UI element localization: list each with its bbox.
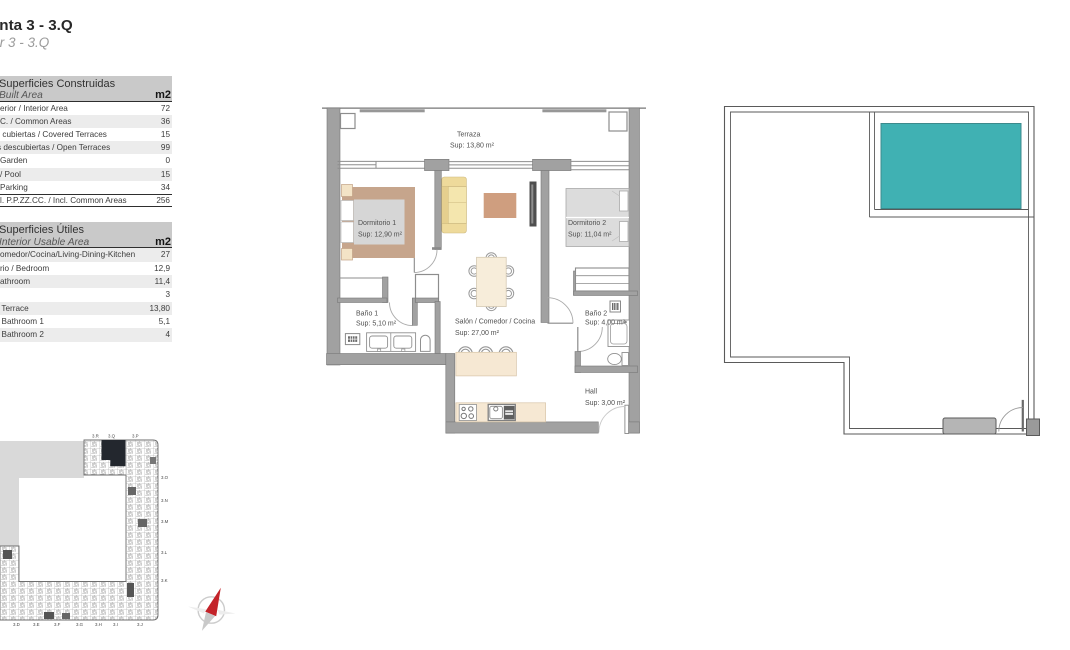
svg-text:3.R: 3.R (92, 433, 99, 438)
svg-text:3.H: 3.H (95, 622, 102, 627)
svg-text:3.G: 3.G (76, 622, 84, 627)
svg-text:3.Q: 3.Q (108, 433, 116, 438)
svg-text:3.M: 3.M (161, 519, 169, 524)
svg-text:3.N: 3.N (161, 498, 168, 503)
svg-text:Baño 1: Baño 1 (356, 311, 378, 318)
svg-text:Dormitorio 1: Dormitorio 1 (358, 220, 396, 227)
svg-text:3.L: 3.L (161, 550, 168, 555)
svg-text:3.D: 3.D (13, 622, 20, 627)
svg-text:3.O: 3.O (161, 475, 169, 480)
svg-text:Hall: Hall (585, 389, 598, 396)
svg-text:3.E: 3.E (33, 622, 40, 627)
svg-text:Sup: 13,80 m²: Sup: 13,80 m² (450, 143, 495, 150)
svg-text:Sup: 12,90 m²: Sup: 12,90 m² (358, 232, 403, 239)
svg-text:Baño 2: Baño 2 (585, 311, 607, 318)
svg-text:Sup: 3,00 m²: Sup: 3,00 m² (585, 400, 626, 407)
svg-text:3.K: 3.K (161, 578, 168, 583)
svg-text:3.I: 3.I (113, 622, 118, 627)
svg-text:3.P: 3.P (132, 433, 139, 438)
svg-text:Sup: 4,00 m²: Sup: 4,00 m² (585, 320, 626, 327)
svg-text:Sup: 11,04 m²: Sup: 11,04 m² (568, 232, 612, 239)
svg-text:Sup: 5,10 m²: Sup: 5,10 m² (356, 321, 397, 328)
svg-text:3.F: 3.F (54, 622, 61, 627)
svg-text:Dormitorio 2: Dormitorio 2 (568, 220, 606, 227)
svg-text:Sup: 27,00 m²: Sup: 27,00 m² (455, 330, 500, 337)
svg-text:3.J: 3.J (137, 622, 143, 627)
svg-text:Terraza: Terraza (457, 132, 480, 139)
svg-text:Salón / Comedor / Cocina: Salón / Comedor / Cocina (455, 319, 535, 326)
